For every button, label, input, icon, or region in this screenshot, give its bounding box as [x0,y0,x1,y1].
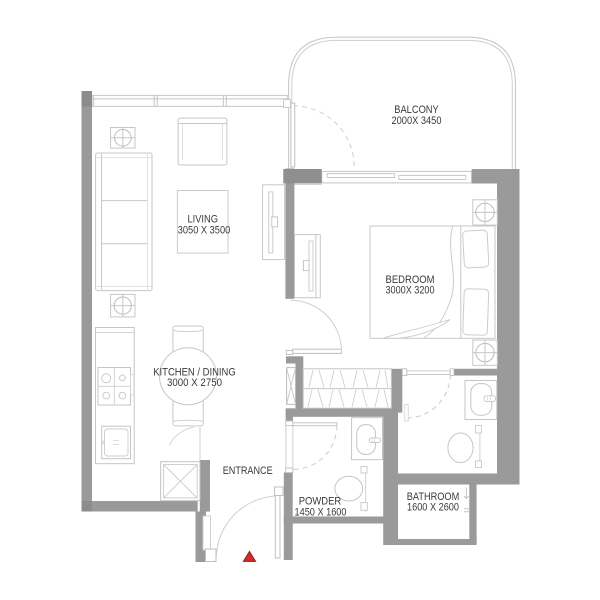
svg-text:3000 X 2750: 3000 X 2750 [167,377,222,389]
svg-text:ENTRANCE: ENTRANCE [223,465,273,477]
svg-text:1600 X 2600: 1600 X 2600 [407,502,459,514]
svg-text:1450 X 1600: 1450 X 1600 [295,506,347,518]
svg-text:3050 X 3500: 3050 X 3500 [178,224,231,236]
svg-text:3000X 3200: 3000X 3200 [386,285,435,297]
svg-text:2000X 3450: 2000X 3450 [392,115,442,127]
